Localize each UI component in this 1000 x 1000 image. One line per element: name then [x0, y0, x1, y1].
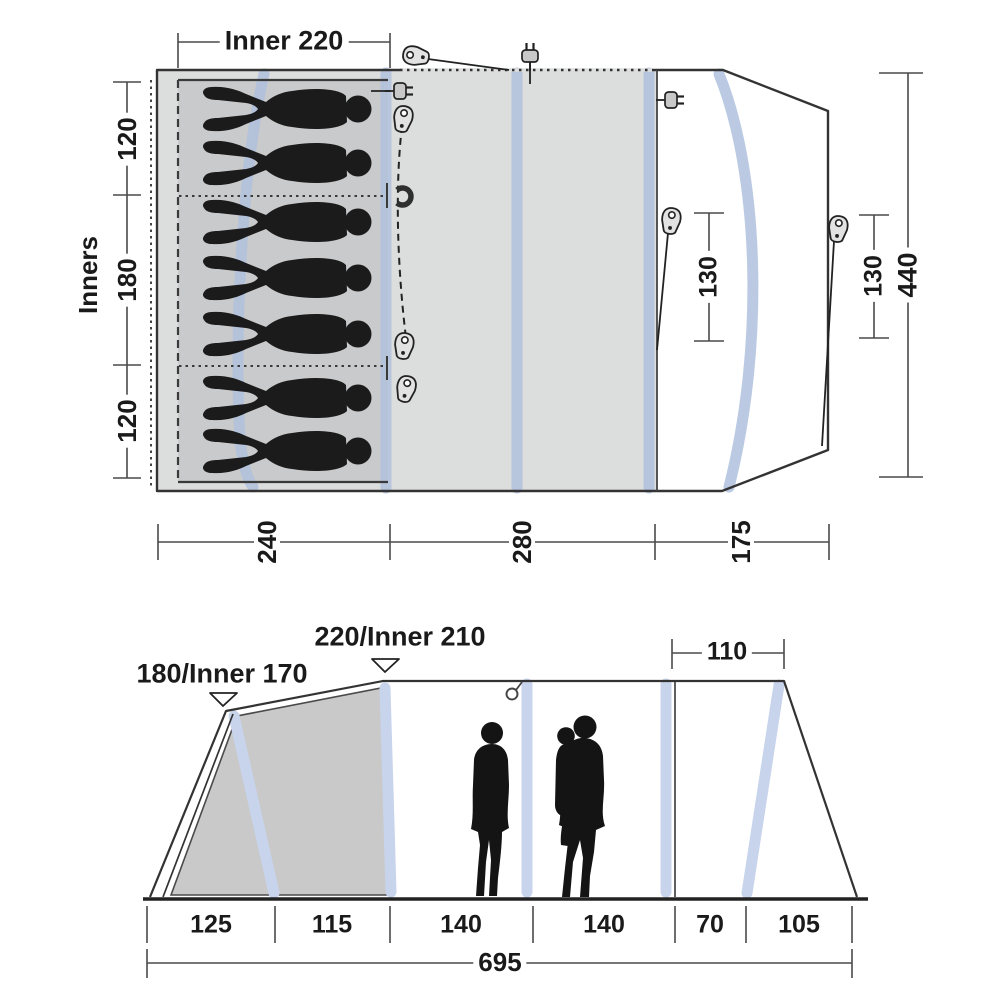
dim-elevation-segment-label: 140	[440, 913, 482, 938]
side-elevation-view	[143, 639, 868, 978]
dim-elevation-segment-label: 105	[778, 913, 820, 938]
zipper-pull-icon	[827, 215, 849, 243]
air-beam	[747, 685, 779, 893]
dim-inner-width-label: Inner 220	[220, 28, 349, 55]
dim-cabin-section-label: 120	[114, 394, 140, 447]
standing-silhouettes	[471, 716, 605, 898]
dim-guy-label: 130	[862, 250, 887, 302]
dim-total-width-label: 440	[895, 247, 922, 302]
air-beam	[385, 688, 391, 892]
dim-guy-label: 130	[697, 251, 722, 303]
dim-plan-depth-label: 280	[509, 515, 535, 568]
dim-front-top-label: 110	[702, 640, 752, 665]
dim-cabin-section-label: 120	[114, 112, 140, 165]
adult-with-child-silhouette	[555, 716, 605, 898]
dim-elevation-segment-label: 70	[696, 913, 724, 938]
dim-elevation-segment-label: 125	[190, 913, 232, 938]
dim-elevation-segment-label: 115	[312, 913, 352, 938]
dim-cabin-section-label: 180	[114, 253, 140, 306]
diagram-canvas	[0, 0, 1000, 1000]
peak-marker-triangle	[210, 693, 237, 706]
floor-plan-view	[113, 33, 923, 560]
zipper-pull-icon	[402, 45, 431, 68]
power-plug-icon	[522, 43, 538, 71]
dim-total-length-label: 695	[473, 949, 526, 975]
dim-plan-depth-label: 240	[254, 515, 280, 568]
lantern-hook-icon	[507, 682, 523, 700]
tent-dimension-diagram: Inner 220 Inners 120 180 120 240 280 175…	[0, 0, 1000, 1000]
inners-axis-label: Inners	[75, 236, 101, 314]
dim-plan-depth-label: 175	[728, 515, 754, 568]
dim-elevation-segment-label: 140	[583, 913, 625, 938]
peak-height-left-label: 180/Inner 170	[136, 661, 307, 688]
adult-silhouette	[471, 722, 509, 896]
peak-marker-triangle	[372, 659, 399, 672]
peak-height-main-label: 220/Inner 210	[314, 624, 485, 651]
